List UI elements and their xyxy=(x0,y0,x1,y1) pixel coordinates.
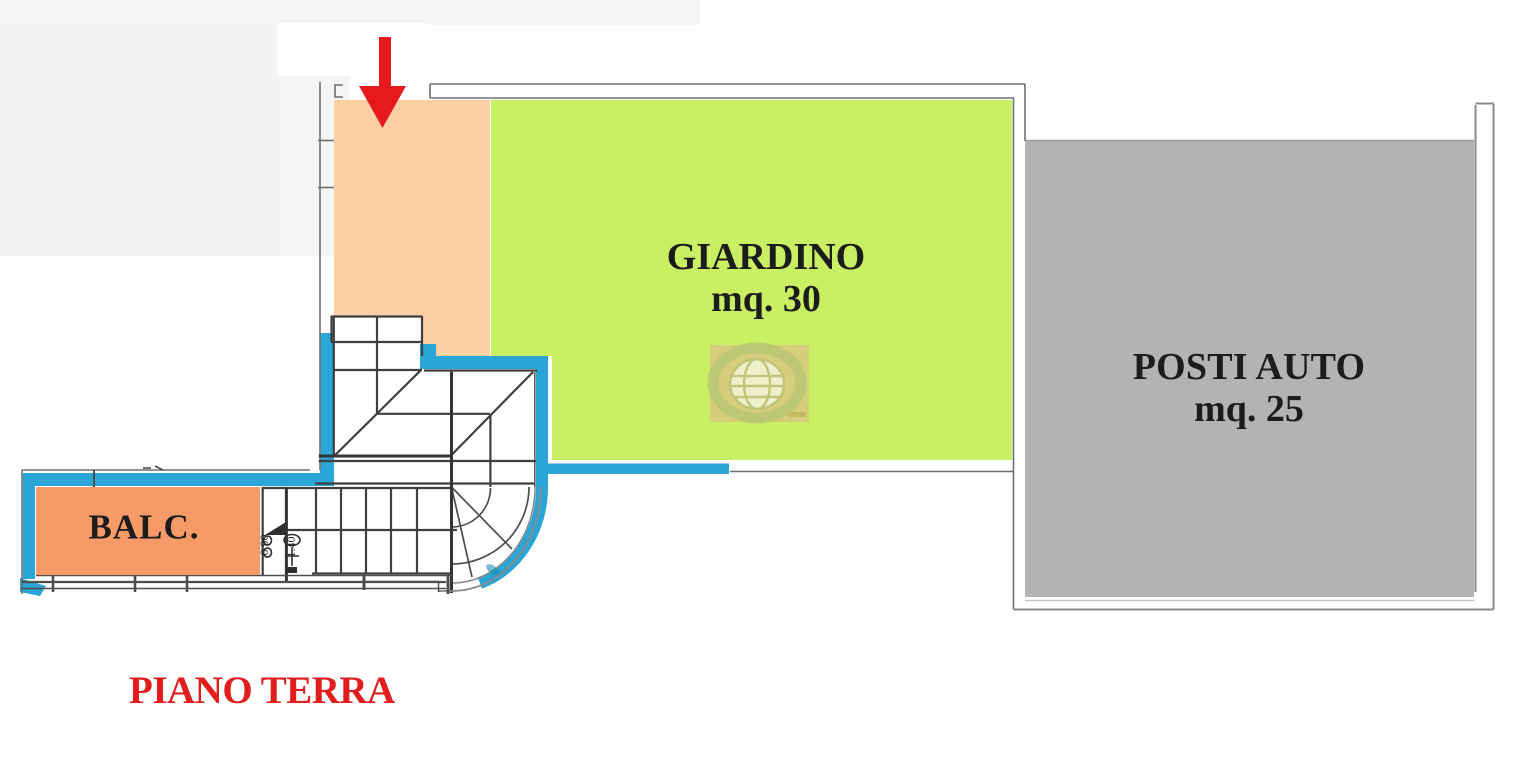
svg-text:0.90: 0.90 xyxy=(257,535,271,556)
svg-text:mq. 30: mq. 30 xyxy=(711,278,821,320)
svg-text:BALC.: BALC. xyxy=(89,508,200,547)
svg-text:POSTI AUTO: POSTI AUTO xyxy=(1133,346,1366,388)
svg-text:1.40: 1.40 xyxy=(284,537,298,558)
svg-text:PIANO TERRA: PIANO TERRA xyxy=(129,669,395,712)
svg-text:GIARDINO: GIARDINO xyxy=(667,236,865,278)
svg-text:mq. 25: mq. 25 xyxy=(1194,388,1304,430)
